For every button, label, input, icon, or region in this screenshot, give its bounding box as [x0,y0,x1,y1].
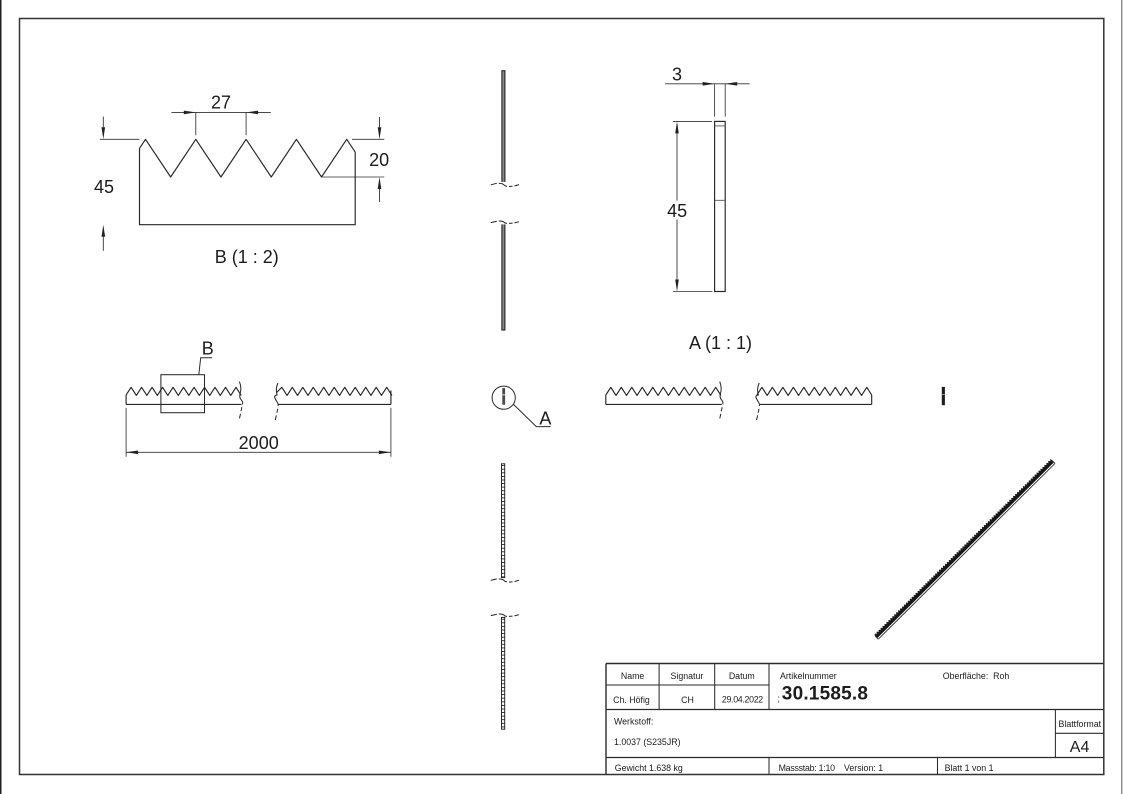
svg-text:;: ; [777,694,780,704]
svg-text:Oberfläche: Roh: Oberfläche: Roh [943,671,1010,681]
svg-text:45: 45 [667,201,687,221]
svg-text:CH: CH [681,695,694,705]
svg-text:A4: A4 [1070,739,1090,756]
svg-text:20: 20 [369,150,389,170]
svg-text:Version: 1: Version: 1 [844,763,883,773]
svg-text:Name: Name [621,671,645,681]
svg-text:A (1 : 1): A (1 : 1) [689,333,752,353]
svg-text:Blatt 1 von 1: Blatt 1 von 1 [945,763,994,773]
svg-text:1.0037 (S235JR): 1.0037 (S235JR) [614,737,681,747]
svg-text:A: A [539,408,551,428]
svg-text:Ch. Höfig: Ch. Höfig [613,695,650,705]
svg-text:Werkstoff:: Werkstoff: [614,716,653,726]
svg-text:30.1585.8: 30.1585.8 [782,684,868,705]
svg-text:45: 45 [94,177,114,197]
svg-text:2000: 2000 [239,433,279,453]
svg-text:Datum: Datum [729,671,755,681]
svg-text:27: 27 [211,93,231,113]
svg-text:B (1 : 2): B (1 : 2) [215,247,279,267]
svg-text:Artikelnummer: Artikelnummer [780,671,837,681]
svg-text:3: 3 [672,65,682,85]
svg-text:Massstab: 1:10: Massstab: 1:10 [779,763,836,773]
svg-text:Blattformat: Blattformat [1059,719,1102,729]
svg-text:Gewicht 1.638 kg: Gewicht 1.638 kg [615,763,683,773]
svg-text:Signatur: Signatur [671,671,704,681]
svg-text:B: B [202,339,214,359]
svg-text:29.04.2022: 29.04.2022 [722,695,763,705]
